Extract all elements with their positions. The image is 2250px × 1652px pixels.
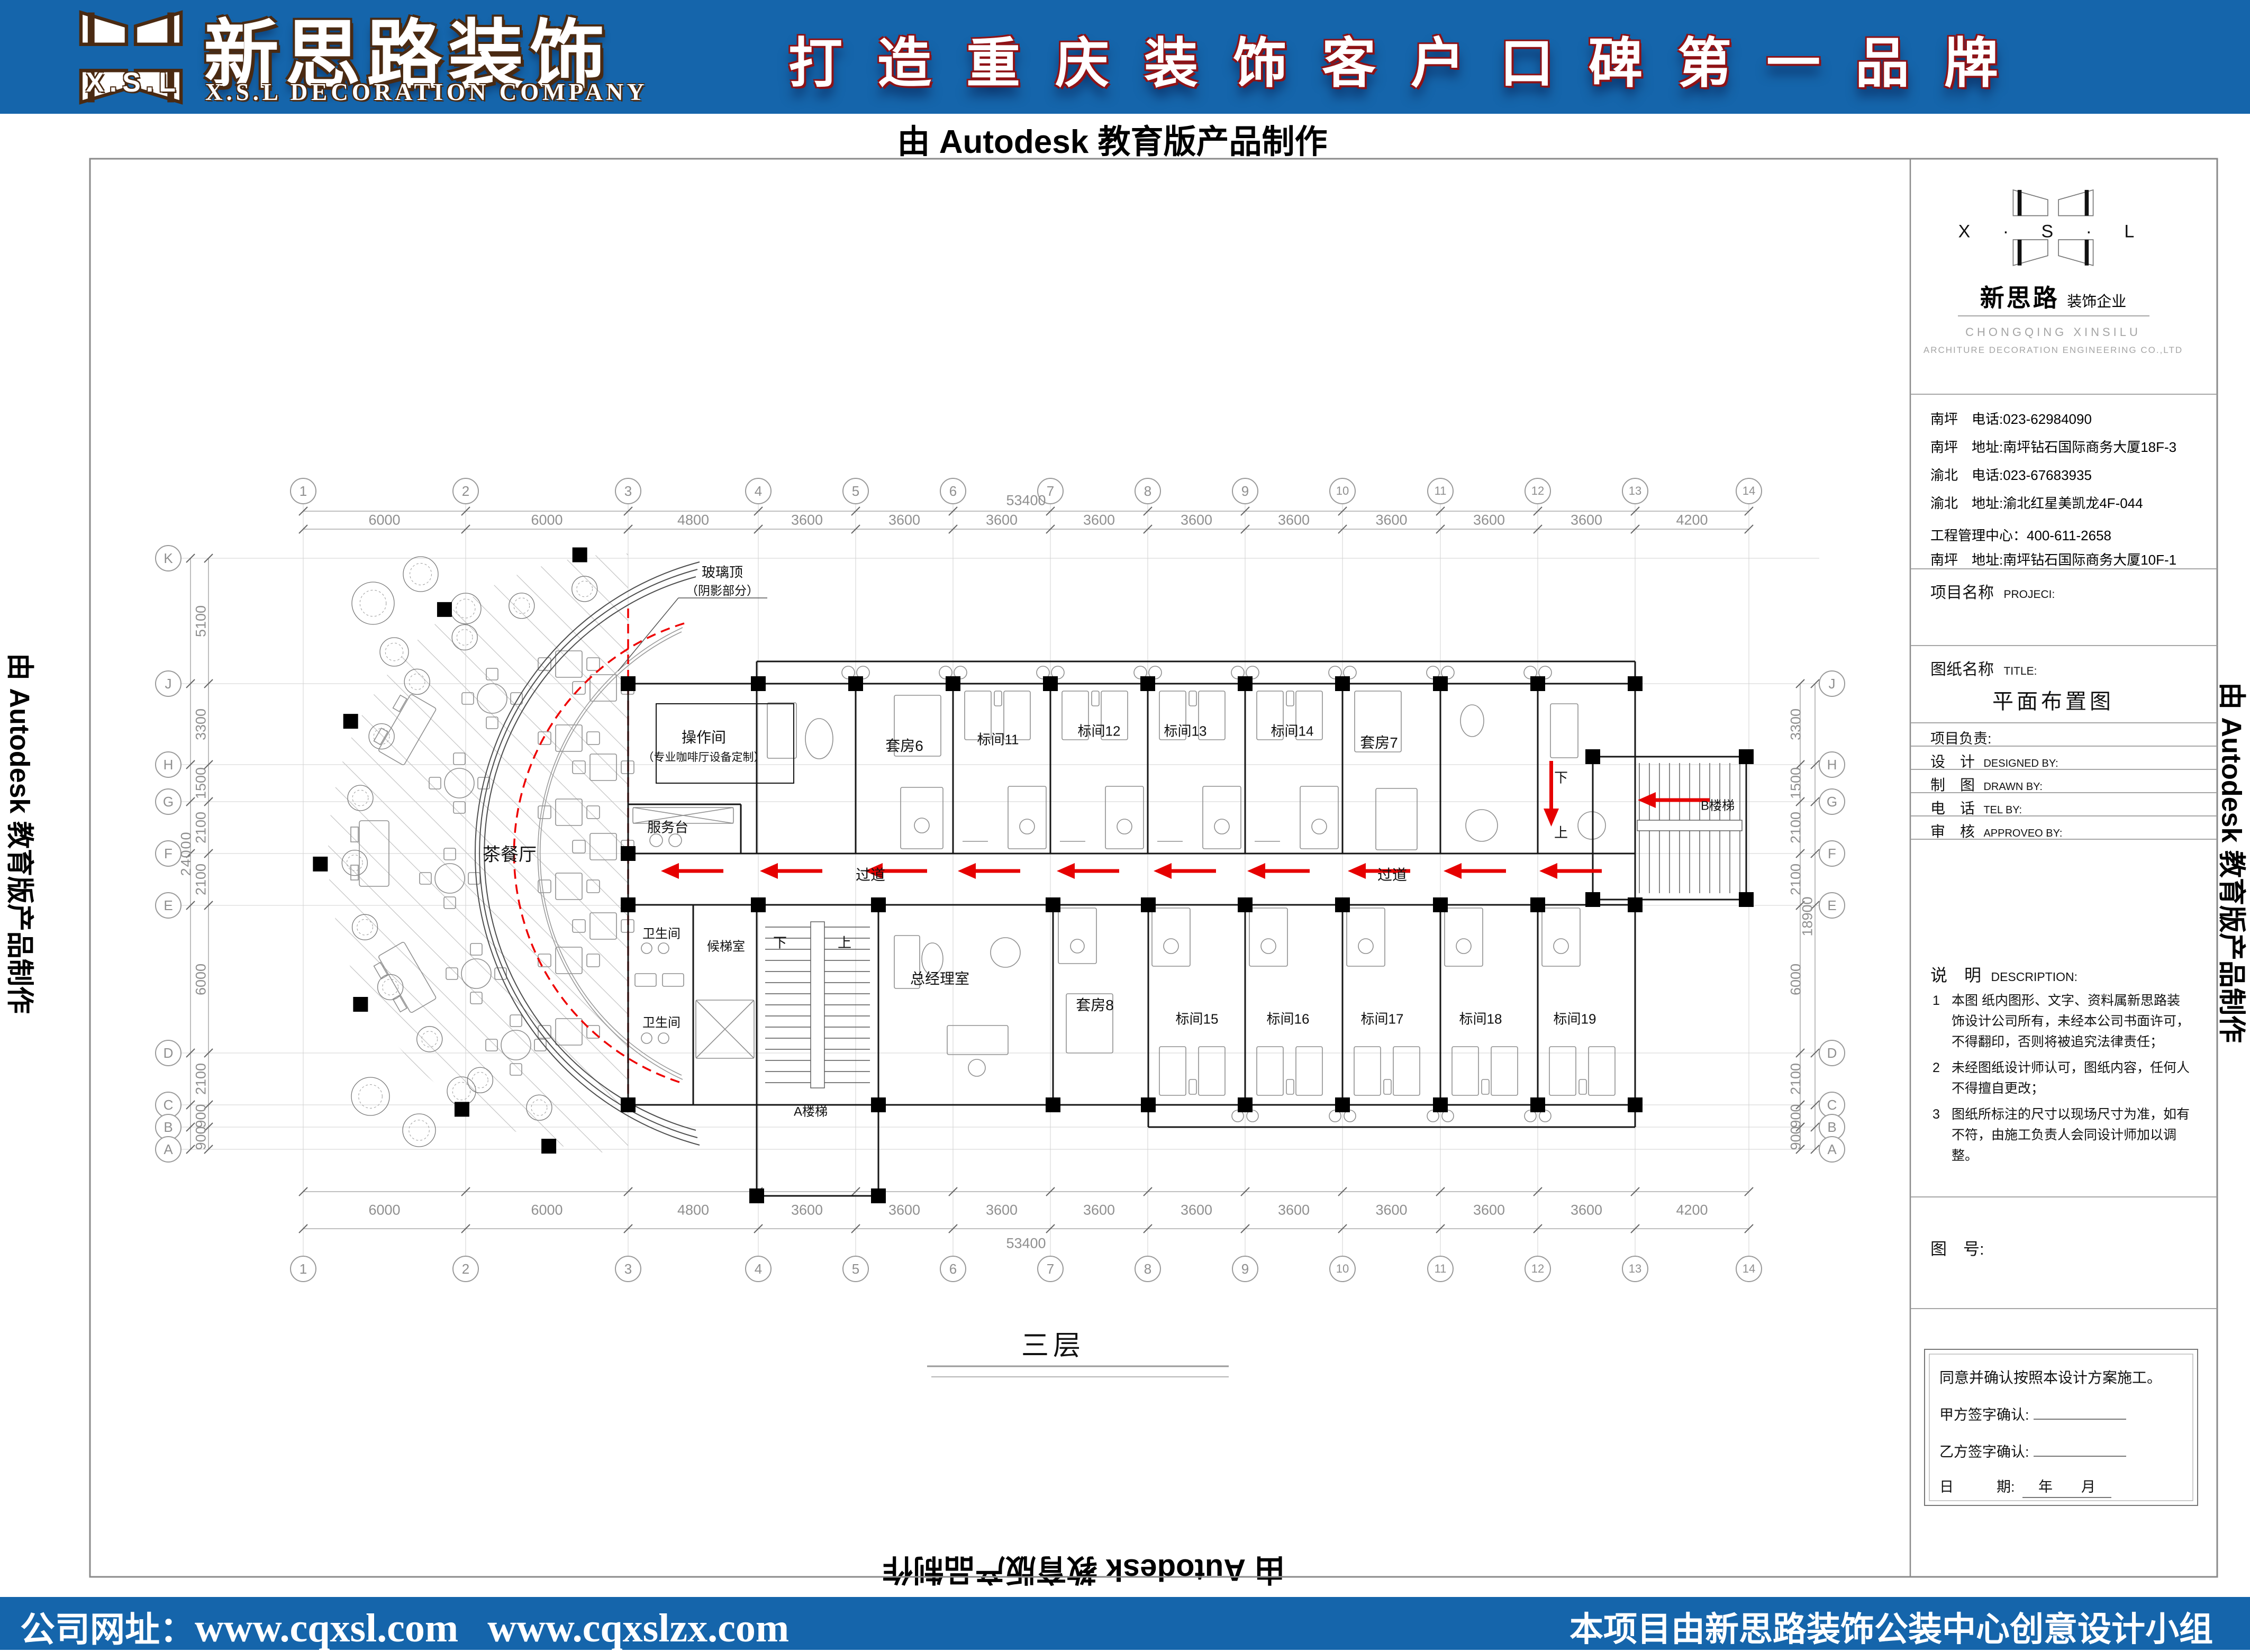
room-label: （阴影部分） [686, 580, 759, 598]
field-approved: 审 核 APPROVEO BY: [1930, 820, 2062, 841]
room-label: 套房8 [1076, 994, 1114, 1015]
room-label: 标间14 [1271, 721, 1314, 740]
dim-label-top: 3600 [791, 512, 823, 529]
grid-bubble-right: E [1819, 892, 1845, 919]
dim-label-top: 3600 [986, 512, 1018, 529]
dim-label-bottom: 3600 [1571, 1202, 1602, 1219]
note-number: 2 [1933, 1058, 1952, 1099]
grid-bubble-top: 3 [615, 478, 641, 504]
grid-bubble-top: 2 [452, 478, 479, 504]
field-drawn: 制 图 DRAWN BY: [1930, 774, 2043, 795]
grid-bubble-bottom: 8 [1135, 1256, 1161, 1282]
sign-b-label: 乙方签字确认: [1939, 1444, 2029, 1460]
credit-line: 本项目由新思路装饰公装中心创意设计小组 [1569, 1602, 2213, 1651]
field-description-en: DESCRIPTION: [1991, 970, 2077, 984]
room-label: 套房6 [885, 734, 923, 756]
room-label: 标间15 [1176, 1009, 1219, 1028]
dim-total-left: 24000 [178, 831, 195, 876]
dim-label-right: 2100 [1788, 864, 1804, 895]
room-label: 过道 [1377, 864, 1407, 885]
grid-bubble-top: 1 [290, 478, 316, 504]
field-approved-en: APPROVEO BY: [1983, 828, 2062, 839]
room-label: 总经理室 [910, 967, 969, 988]
grid-bubble-right: F [1819, 840, 1845, 867]
note-item: 3 图纸所标注的尺寸以现场尺寸为准，如有不符，由施工负责人会同设计师加以调整。 [1933, 1104, 2190, 1166]
dim-label-top: 3600 [888, 512, 920, 529]
titleblock-brand-tag: 装饰企业 [2067, 293, 2126, 310]
room-label: 上 [1554, 822, 1568, 842]
dim-label-right: 2100 [1788, 1063, 1804, 1095]
room-label: 上 [838, 932, 851, 952]
room-label: 过道 [856, 864, 885, 885]
dim-label-right: 6000 [1788, 963, 1804, 995]
dim-label-top: 6000 [531, 512, 562, 529]
contact-row: 渝北 电话:023-67683935 [1930, 465, 2092, 484]
grid-bubble-top: 12 [1525, 478, 1551, 504]
agreement-text: 同意并确认按照本设计方案施工。 [1939, 1366, 2162, 1387]
dim-label-top: 6000 [368, 512, 400, 529]
field-approved-cn: 审 核 [1930, 823, 1975, 840]
contact-row: 南坪 地址:南坪钻石国际商务大厦18F-3 [1930, 437, 2176, 456]
note-number: 3 [1933, 1104, 1952, 1166]
website-url-1[interactable]: www.cqxsl.com [195, 1606, 458, 1650]
dim-label-bottom: 3600 [1083, 1202, 1115, 1219]
field-tel: 电 话 TEL BY: [1930, 797, 2022, 818]
grid-bubble-left: H [155, 751, 182, 778]
dim-label-left: 900 [193, 1126, 210, 1150]
grid-bubble-right: J [1819, 670, 1845, 697]
grid-bubble-top: 4 [745, 478, 772, 504]
sign-row-b: 乙方签字确认: [1939, 1440, 2126, 1461]
sign-row-a: 甲方签字确认: [1939, 1403, 2126, 1424]
field-title: 图纸名称 TITLE: [1930, 656, 2037, 679]
contact-row: 南坪 地址:南坪钻石国际商务大厦10F-1 [1930, 549, 2176, 569]
field-designed: 设 计 DESIGNED BY: [1930, 750, 2058, 771]
dim-total-right: 18900 [1800, 896, 1816, 936]
grid-bubble-bottom: 4 [745, 1256, 772, 1282]
grid-bubble-bottom: 14 [1736, 1256, 1762, 1282]
grid-bubble-left: J [155, 670, 182, 697]
grid-bubble-top: 6 [940, 478, 966, 504]
room-label: 标间11 [977, 729, 1019, 749]
grid-bubble-left: A [155, 1136, 182, 1163]
dim-label-bottom: 3600 [791, 1202, 823, 1219]
grid-bubble-bottom: 9 [1232, 1256, 1258, 1282]
dim-label-top: 3600 [1571, 512, 1602, 529]
field-description-cn: 说 明 [1930, 966, 1981, 985]
dim-label-right: 900 [1788, 1126, 1804, 1150]
dim-label-bottom: 3600 [1473, 1202, 1505, 1219]
grid-bubble-bottom: 2 [452, 1256, 479, 1282]
grid-bubble-bottom: 1 [290, 1256, 316, 1282]
grid-bubble-top: 11 [1427, 478, 1454, 504]
grid-bubble-left: K [155, 545, 182, 571]
contact-row: 渝北 地址:渝北红星美凯龙4F-044 [1930, 493, 2143, 512]
dim-label-left: 2100 [193, 864, 210, 895]
dim-label-top: 3600 [1375, 512, 1407, 529]
contact-row: 工程管理中心：400-611-2658 [1930, 525, 2111, 544]
field-project: 项目名称 PROJECI: [1930, 579, 2055, 603]
field-title-en: TITLE: [2003, 665, 2037, 677]
room-label: 标间19 [1554, 1009, 1596, 1028]
field-designed-cn: 设 计 [1930, 754, 1975, 770]
cad-sheet-page: { "banner": { "xsl_glyph_label": "X.S.L"… [0, 0, 2250, 1650]
titleblock-brand: 新思路 装饰企业 [1980, 279, 2126, 314]
sign-a-label: 甲方签字确认: [1939, 1407, 2029, 1423]
room-label: 标间13 [1164, 721, 1207, 740]
dim-label-top: 3600 [1278, 512, 1310, 529]
field-project-en: PROJECI: [2003, 588, 2055, 601]
room-label: 服务台 [647, 817, 688, 837]
bottom-banner: 公司网址：www.cqxsl.comwww.cqxslzx.com 本项目由新思… [0, 1597, 2250, 1650]
dim-label-top: 4800 [677, 512, 709, 529]
dim-label-bottom: 3600 [1181, 1202, 1212, 1219]
dim-label-right: 2100 [1788, 812, 1804, 843]
drawing-title: 平面布置图 [1992, 684, 2114, 715]
dim-label-left: 900 [193, 1104, 210, 1128]
room-label: 下 [1554, 767, 1568, 787]
room-label: （专业咖啡厅设备定制） [643, 749, 765, 765]
grid-bubble-top: 14 [1736, 478, 1762, 504]
field-title-cn: 图纸名称 [1930, 661, 1994, 678]
field-project-cn: 项目名称 [1930, 584, 1994, 602]
dim-label-right: 3300 [1788, 708, 1804, 740]
grid-bubble-top: 10 [1329, 478, 1356, 504]
sign-a-line [2034, 1404, 2126, 1420]
grid-bubble-left: G [155, 788, 182, 815]
note-text: 图纸所标注的尺寸以现场尺寸为准，如有不符，由施工负责人会同设计师加以调整。 [1952, 1104, 2190, 1166]
grid-bubble-top: 5 [842, 478, 869, 504]
dim-label-bottom: 3600 [888, 1202, 920, 1219]
room-label: 标间16 [1267, 1009, 1310, 1028]
titleblock-brand-cn: 新思路 [1980, 284, 2060, 312]
dim-label-bottom: 3600 [1375, 1202, 1407, 1219]
dim-label-top: 3600 [1083, 512, 1115, 529]
field-drawn-cn: 制 图 [1930, 777, 1975, 793]
room-label: 卫生间 [642, 1012, 681, 1031]
grid-bubble-bottom: 10 [1329, 1256, 1356, 1282]
dim-label-bottom: 6000 [531, 1202, 562, 1219]
room-label: 操作间 [682, 726, 726, 747]
contact-row: 南坪 电话:023-62984090 [1930, 409, 2092, 428]
grid-bubble-top: 13 [1622, 478, 1648, 504]
date-label: 日 期: [1939, 1479, 2015, 1495]
room-label: 玻璃顶 [702, 562, 743, 582]
grid-bubble-bottom: 6 [940, 1256, 966, 1282]
grid-bubble-left: F [155, 840, 182, 867]
grid-bubble-top: 9 [1232, 478, 1258, 504]
description-notes: 1 本图 纸内图形、文字、资料属新思路装饰设计公司所有，未经本公司书面许可，不得… [1933, 991, 2190, 1172]
dim-label-left: 2100 [193, 812, 210, 843]
room-label: 茶餐厅 [483, 840, 537, 866]
dim-label-bottom: 6000 [368, 1202, 400, 1219]
grid-bubble-bottom: 12 [1525, 1256, 1551, 1282]
dim-label-right: 1500 [1788, 767, 1804, 799]
room-label: 候梯室 [707, 936, 745, 955]
grid-bubble-bottom: 5 [842, 1256, 869, 1282]
grid-bubble-left: D [155, 1040, 182, 1066]
field-description: 说 明 DESCRIPTION: [1930, 962, 2077, 986]
room-label: 下 [773, 932, 787, 952]
room-label: B楼梯 [1701, 795, 1735, 814]
grid-bubble-right: G [1819, 788, 1845, 815]
website-url-2[interactable]: www.cqxslzx.com [487, 1606, 789, 1650]
website-line: 公司网址：www.cqxsl.comwww.cqxslzx.com [20, 1601, 789, 1652]
field-drawn-en: DRAWN BY: [1983, 781, 2043, 793]
floor-plan-drawing [0, 0, 2250, 1650]
sign-b-line [2034, 1441, 2126, 1457]
grid-bubble-top: 8 [1135, 478, 1161, 504]
dim-total-top: 53400 [1006, 493, 1046, 509]
room-label: 标间17 [1361, 1009, 1404, 1028]
dim-label-top: 3600 [1473, 512, 1505, 529]
dim-label-left: 3300 [193, 708, 210, 740]
room-label: 套房7 [1360, 731, 1398, 752]
date-row: 日 期: 年 月 [1939, 1475, 2111, 1496]
dim-label-bottom: 3600 [986, 1202, 1018, 1219]
dim-label-top: 3600 [1181, 512, 1212, 529]
titleblock-en1: CHONGQING XINSILU [1965, 325, 2141, 339]
grid-bubble-left: E [155, 892, 182, 919]
floor-title: 三层 [1021, 1323, 1085, 1363]
field-manager: 项目负责: [1930, 727, 1992, 748]
note-number: 1 [1933, 991, 1952, 1052]
room-label: 卫生间 [642, 923, 681, 942]
titleblock-xsl-text: X · S · L [1958, 222, 2148, 242]
dim-label-right: 900 [1788, 1104, 1804, 1128]
field-tel-cn: 电 话 [1930, 800, 1975, 816]
grid-bubble-right: D [1819, 1040, 1845, 1066]
dim-total-bottom: 53400 [1006, 1236, 1046, 1252]
field-designed-en: DESIGNED BY: [1983, 758, 2058, 769]
dim-label-bottom: 3600 [1278, 1202, 1310, 1219]
grid-bubble-right: A [1819, 1136, 1845, 1163]
website-label: 公司网址： [20, 1610, 195, 1649]
grid-bubble-bottom: 11 [1427, 1256, 1454, 1282]
room-label: 标间12 [1078, 721, 1121, 740]
note-item: 1 本图 纸内图形、文字、资料属新思路装饰设计公司所有，未经本公司书面许可，不得… [1933, 991, 2190, 1052]
dim-label-left: 5100 [193, 605, 210, 637]
dim-label-left: 2100 [193, 1063, 210, 1095]
grid-bubble-right: H [1819, 751, 1845, 778]
field-tel-en: TEL BY: [1983, 804, 2022, 816]
dim-label-bottom: 4800 [677, 1202, 709, 1219]
note-item: 2 未经图纸设计师认可，图纸内容，任何人不得擅自更改； [1933, 1058, 2190, 1099]
dim-label-top: 4200 [1676, 512, 1708, 529]
dim-label-left: 6000 [193, 963, 210, 995]
date-suffix: 年 月 [2022, 1479, 2111, 1498]
grid-bubble-bottom: 3 [615, 1256, 641, 1282]
note-text: 未经图纸设计师认可，图纸内容，任何人不得擅自更改； [1952, 1058, 2190, 1099]
titleblock-en2: ARCHITURE DECORATION ENGINEERING CO.,LTD [1924, 345, 2183, 356]
dim-label-left: 1500 [193, 767, 210, 799]
note-text: 本图 纸内图形、文字、资料属新思路装饰设计公司所有，未经本公司书面许可，不得翻印… [1952, 991, 2190, 1052]
dim-label-bottom: 4200 [1676, 1202, 1708, 1219]
room-label: A楼梯 [794, 1101, 828, 1120]
grid-bubble-bottom: 13 [1622, 1256, 1648, 1282]
grid-bubble-bottom: 7 [1037, 1256, 1064, 1282]
room-label: 标间18 [1459, 1009, 1502, 1028]
field-fig-no: 图 号: [1930, 1236, 1984, 1259]
